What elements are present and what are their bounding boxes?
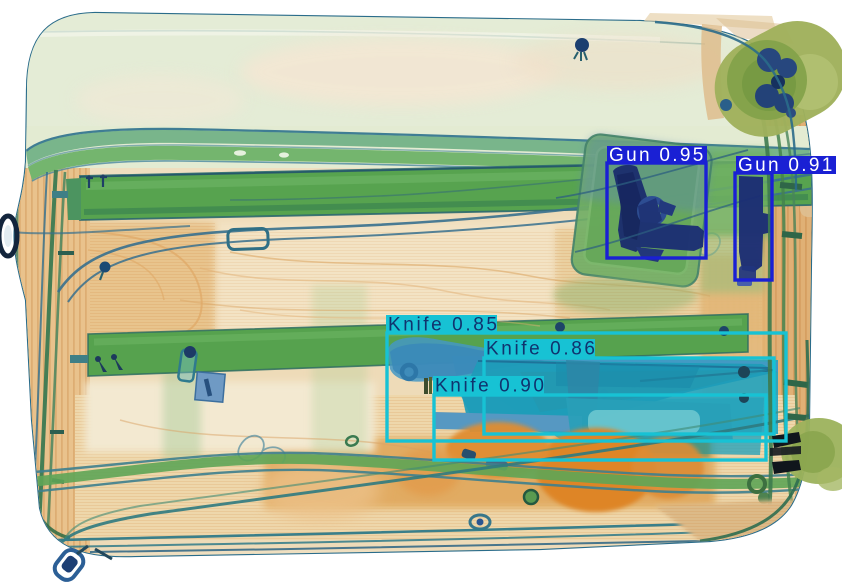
svg-text:Knife 0.90: Knife 0.90	[435, 376, 547, 397]
svg-text:Gun 0.91: Gun 0.91	[738, 155, 835, 176]
svg-text:Gun 0.95: Gun 0.95	[609, 145, 706, 166]
svg-text:Knife 0.86: Knife 0.86	[486, 339, 598, 360]
svg-text:Knife 0.85: Knife 0.85	[388, 315, 500, 336]
